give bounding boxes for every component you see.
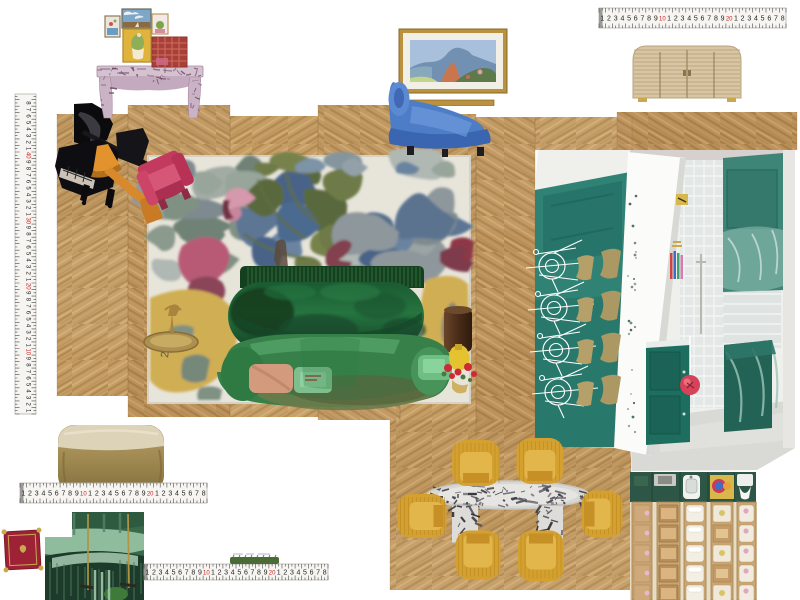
svg-text:7: 7 xyxy=(316,569,320,576)
svg-text:6: 6 xyxy=(634,15,638,22)
svg-text:1: 1 xyxy=(667,15,671,22)
svg-text:20: 20 xyxy=(726,16,733,22)
svg-text:7: 7 xyxy=(250,569,254,576)
svg-text:3: 3 xyxy=(102,490,106,497)
svg-text:5: 5 xyxy=(115,490,119,497)
svg-text:2: 2 xyxy=(95,490,99,497)
svg-text:20: 20 xyxy=(25,283,31,290)
svg-text:2: 2 xyxy=(283,569,287,576)
svg-text:1: 1 xyxy=(155,490,159,497)
svg-text:6: 6 xyxy=(178,569,182,576)
svg-text:10: 10 xyxy=(203,570,210,576)
svg-text:1: 1 xyxy=(88,490,92,497)
svg-text:8: 8 xyxy=(68,490,72,497)
svg-text:5: 5 xyxy=(48,490,52,497)
svg-text:4: 4 xyxy=(754,15,758,22)
svg-text:9: 9 xyxy=(721,15,725,22)
svg-text:3: 3 xyxy=(168,490,172,497)
svg-text:4: 4 xyxy=(296,569,300,576)
svg-text:7: 7 xyxy=(774,15,778,22)
svg-text:1: 1 xyxy=(21,490,25,497)
svg-text:6: 6 xyxy=(310,569,314,576)
svg-text:9: 9 xyxy=(198,569,202,576)
svg-text:6: 6 xyxy=(701,15,705,22)
svg-text:4: 4 xyxy=(41,490,45,497)
svg-text:9: 9 xyxy=(142,490,146,497)
svg-text:20: 20 xyxy=(147,491,154,497)
svg-text:1: 1 xyxy=(734,15,738,22)
svg-text:3: 3 xyxy=(224,569,228,576)
svg-text:10: 10 xyxy=(80,491,87,497)
svg-text:9: 9 xyxy=(654,15,658,22)
svg-text:5: 5 xyxy=(694,15,698,22)
svg-text:5: 5 xyxy=(172,569,176,576)
svg-text:8: 8 xyxy=(135,490,139,497)
svg-text:6: 6 xyxy=(767,15,771,22)
svg-text:8: 8 xyxy=(202,490,206,497)
svg-text:5: 5 xyxy=(761,15,765,22)
svg-text:9: 9 xyxy=(264,569,268,576)
svg-text:8: 8 xyxy=(647,15,651,22)
svg-text:3: 3 xyxy=(35,490,39,497)
svg-text:9: 9 xyxy=(75,490,79,497)
svg-text:4: 4 xyxy=(620,15,624,22)
svg-text:7: 7 xyxy=(640,15,644,22)
svg-text:1: 1 xyxy=(600,15,604,22)
svg-text:5: 5 xyxy=(182,490,186,497)
svg-text:8: 8 xyxy=(191,569,195,576)
svg-text:2: 2 xyxy=(28,490,32,497)
svg-text:3: 3 xyxy=(290,569,294,576)
svg-text:7: 7 xyxy=(707,15,711,22)
svg-text:2: 2 xyxy=(152,569,156,576)
svg-text:3: 3 xyxy=(681,15,685,22)
svg-text:20: 20 xyxy=(269,570,276,576)
svg-text:4: 4 xyxy=(165,569,169,576)
svg-text:2: 2 xyxy=(607,15,611,22)
svg-text:5: 5 xyxy=(303,569,307,576)
svg-text:1: 1 xyxy=(145,569,149,576)
svg-text:3: 3 xyxy=(158,569,162,576)
svg-text:7: 7 xyxy=(61,490,65,497)
svg-text:8: 8 xyxy=(781,15,785,22)
svg-text:2: 2 xyxy=(741,15,745,22)
svg-text:7: 7 xyxy=(185,569,189,576)
svg-text:10: 10 xyxy=(25,348,31,355)
svg-text:4: 4 xyxy=(687,15,691,22)
svg-text:6: 6 xyxy=(55,490,59,497)
svg-text:8: 8 xyxy=(257,569,261,576)
svg-text:10: 10 xyxy=(659,16,666,22)
svg-text:4: 4 xyxy=(231,569,235,576)
svg-text:5: 5 xyxy=(237,569,241,576)
svg-text:8: 8 xyxy=(714,15,718,22)
svg-text:1: 1 xyxy=(277,569,281,576)
svg-text:7: 7 xyxy=(195,490,199,497)
svg-text:7: 7 xyxy=(128,490,132,497)
svg-text:2: 2 xyxy=(162,490,166,497)
svg-text:6: 6 xyxy=(122,490,126,497)
svg-text:6: 6 xyxy=(244,569,248,576)
svg-text:30: 30 xyxy=(25,217,31,224)
svg-text:2: 2 xyxy=(218,569,222,576)
svg-text:1: 1 xyxy=(211,569,215,576)
svg-text:5: 5 xyxy=(627,15,631,22)
svg-text:40: 40 xyxy=(25,152,31,159)
svg-text:4: 4 xyxy=(175,490,179,497)
svg-text:8: 8 xyxy=(323,569,327,576)
svg-text:3: 3 xyxy=(747,15,751,22)
svg-text:3: 3 xyxy=(614,15,618,22)
svg-text:4: 4 xyxy=(108,490,112,497)
svg-text:6: 6 xyxy=(188,490,192,497)
svg-text:2: 2 xyxy=(674,15,678,22)
